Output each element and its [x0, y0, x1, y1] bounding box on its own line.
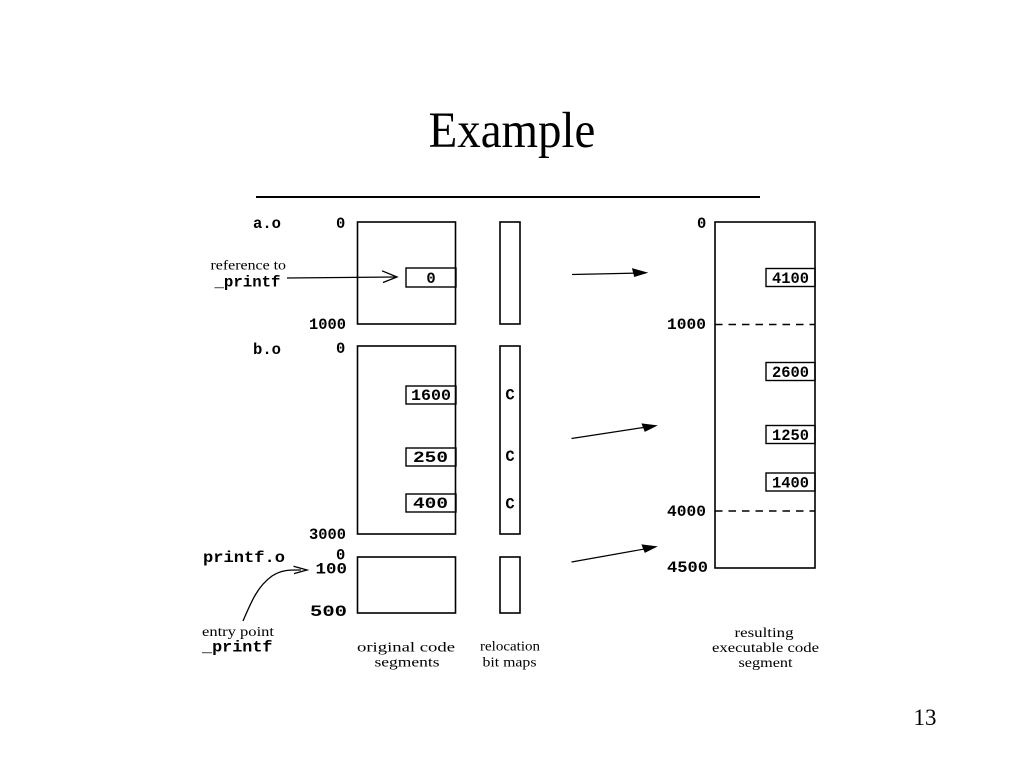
svg-text:1000: 1000 [667, 316, 706, 334]
svg-text:400: 400 [413, 495, 448, 513]
svg-text:b.o: b.o [253, 341, 281, 359]
svg-text:C: C [505, 387, 514, 405]
svg-text:3000: 3000 [309, 526, 346, 544]
svg-text:0: 0 [426, 270, 435, 288]
svg-text:0: 0 [697, 215, 706, 233]
svg-text:1600: 1600 [411, 387, 451, 405]
svg-text:relocation: relocation [480, 640, 540, 655]
svg-text:4100: 4100 [772, 270, 809, 288]
svg-text:1400: 1400 [772, 475, 809, 493]
svg-text:4500: 4500 [667, 559, 708, 577]
svg-text:_printf: _printf [201, 639, 273, 657]
svg-text:bit maps: bit maps [483, 656, 537, 671]
svg-text:executable code: executable code [712, 641, 819, 656]
svg-text:C: C [505, 448, 514, 466]
svg-text:segment: segment [739, 656, 793, 671]
svg-text:0: 0 [336, 215, 345, 233]
svg-text:2600: 2600 [772, 364, 809, 382]
svg-text:250: 250 [413, 449, 448, 467]
svg-text:original code: original code [357, 641, 455, 656]
svg-text:4000: 4000 [667, 503, 706, 521]
svg-text:segments: segments [375, 656, 440, 671]
svg-text:printf.o: printf.o [203, 549, 285, 567]
svg-text:a.o: a.o [253, 215, 281, 233]
svg-text:500: 500 [310, 603, 347, 621]
svg-text:1250: 1250 [772, 427, 809, 445]
svg-text:resulting: resulting [735, 626, 794, 641]
svg-text:reference to: reference to [211, 259, 287, 274]
svg-text:_printf: _printf [213, 274, 280, 292]
svg-text:100: 100 [316, 561, 348, 579]
svg-text:0: 0 [336, 340, 345, 358]
svg-text:1000: 1000 [309, 316, 346, 334]
svg-text:C: C [505, 496, 514, 514]
